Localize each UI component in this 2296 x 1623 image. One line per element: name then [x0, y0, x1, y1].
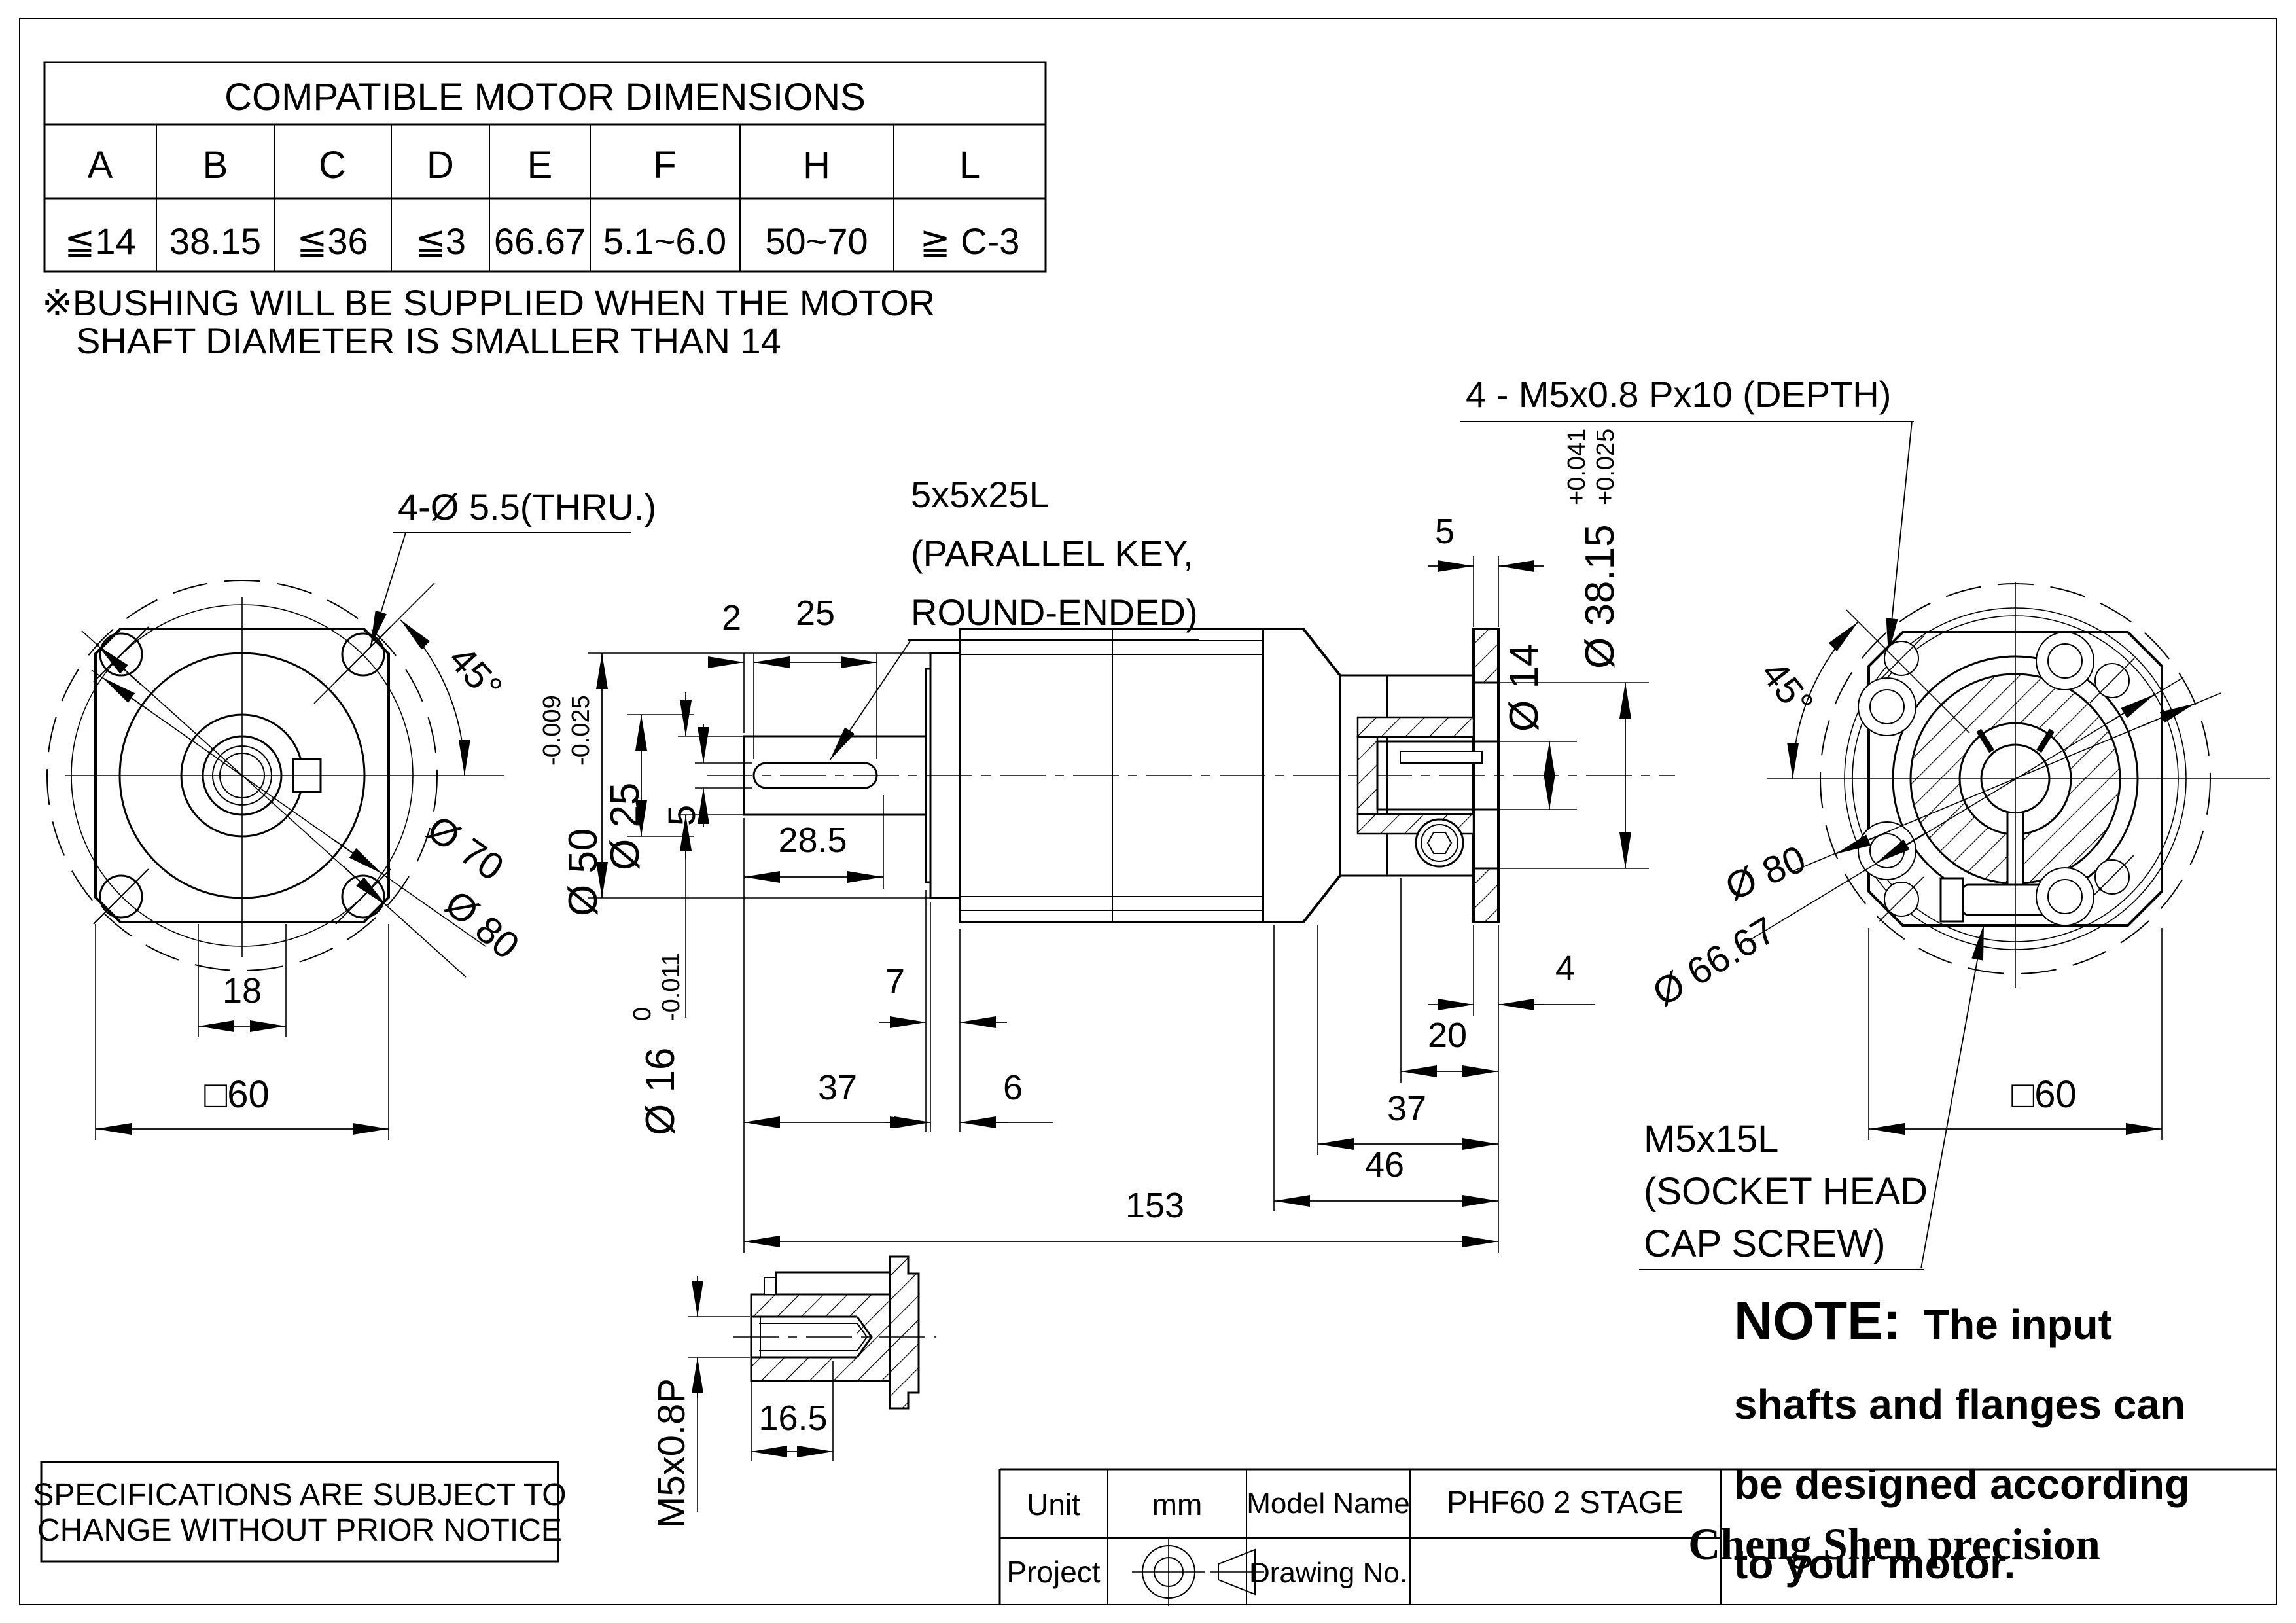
- dim153-label: 153: [1125, 1186, 1184, 1225]
- diagonal-centerline: [314, 583, 434, 704]
- table-header-d: D: [427, 144, 454, 187]
- note-head: NOTE:: [1734, 1291, 1901, 1351]
- dim-7-6-37: 7 37 6: [744, 818, 1053, 1253]
- thru-holes-callout: 4-Ø 5.5(THRU.): [370, 486, 656, 647]
- dim37-left-label: 37: [818, 1068, 857, 1107]
- dim-dia25: Ø 25: [603, 715, 694, 870]
- project-label: Project: [1006, 1555, 1100, 1589]
- table-value-d: ≦3: [415, 221, 466, 262]
- spec-note-box: SPECIFICATIONS ARE SUBJECT TO CHANGE WIT…: [33, 1462, 566, 1561]
- dim6-label: 6: [1003, 1068, 1023, 1107]
- dim-2-25: 2 25: [710, 594, 877, 759]
- tapped-hole-detail-view: M5x0.8P 16.5: [650, 1257, 936, 1528]
- dim-45deg-left: 45°: [400, 620, 510, 776]
- table-value-l: ≧ C-3: [920, 221, 1020, 262]
- spec-note-line2: CHANGE WITHOUT PRIOR NOTICE: [37, 1513, 562, 1548]
- dia16-tol-lo: -0.011: [658, 952, 685, 1021]
- table-header-h: H: [803, 144, 830, 187]
- dim-right-stack: 4 20 37 46 153: [744, 878, 1595, 1253]
- dim28-5-label: 28.5: [778, 821, 847, 860]
- dim-top-right: 5 Ø 14 Ø 38.15 +0.041 +0.025: [1428, 429, 1649, 868]
- table-value-e: 66.67: [494, 221, 586, 262]
- dim46-label: 46: [1365, 1145, 1404, 1185]
- table-header-f: F: [653, 144, 676, 187]
- key-callout: 5x5x25L (PARALLEL KEY, ROUND-ENDED): [830, 474, 1199, 760]
- dia38-tol-hi: +0.041: [1563, 429, 1591, 505]
- table-header-e: E: [527, 144, 553, 187]
- table-value-a: ≦14: [64, 221, 135, 262]
- table-title: COMPATIBLE MOTOR DIMENSIONS: [224, 76, 866, 118]
- thru-holes-label: 4-Ø 5.5(THRU.): [398, 486, 656, 527]
- dim5-key-label: 5: [661, 805, 703, 826]
- note-line2: shafts and flanges can: [1734, 1381, 2185, 1428]
- screw-note-line1: M5x15L: [1644, 1118, 1778, 1160]
- key-note-line1: 5x5x25L: [911, 474, 1050, 515]
- dia80-left-label: Ø 80: [436, 882, 527, 968]
- table-value-b: 38.15: [169, 221, 261, 262]
- dia70-label: Ø 70: [419, 807, 511, 889]
- drawing-no-label: Drawing No.: [1249, 1557, 1407, 1589]
- front-flange-view: 45° Ø 70 Ø 80 18 □60 4-Ø 5.5(THRU.: [47, 486, 656, 1140]
- flange-wall-section: [890, 1257, 919, 1408]
- dia16-label: Ø 16: [638, 1048, 683, 1135]
- bushing-note-line2: SHAFT DIAMETER IS SMALLER THAN 14: [76, 320, 781, 361]
- angle-45-label-right: 45°: [1753, 652, 1822, 724]
- engineering-drawing-canvas: COMPATIBLE MOTOR DIMENSIONS A B C D E F …: [0, 0, 2296, 1623]
- dim7-label: 7: [885, 962, 905, 1001]
- table-header-a: A: [88, 144, 113, 187]
- projection-symbol-icon: [1132, 1538, 1264, 1606]
- table-value-f: 5.1~6.0: [603, 221, 726, 262]
- dia25-label: Ø 25: [603, 783, 648, 870]
- dia50-label: Ø 50: [561, 829, 606, 916]
- tap-callout: 4 - M5x0.8 Px10 (DEPTH): [1460, 374, 1914, 654]
- model-name-label: Model Name: [1246, 1488, 1409, 1520]
- key-note-line3: ROUND-ENDED): [911, 592, 1198, 633]
- dim-dia16: Ø 16 0 -0.011: [629, 692, 744, 1135]
- table-header-l: L: [959, 144, 980, 187]
- compatible-motor-dimensions-table: COMPATIBLE MOTOR DIMENSIONS A B C D E F …: [44, 62, 1046, 272]
- dia38-label: Ø 38.15: [1578, 524, 1623, 669]
- table-header-c: C: [319, 144, 346, 187]
- model-name-value: PHF60 2 STAGE: [1447, 1486, 1684, 1520]
- tap-note-label: 4 - M5x0.8 Px10 (DEPTH): [1466, 374, 1891, 415]
- detail-thread-label: M5x0.8P: [650, 1378, 693, 1528]
- sq60-left-label: □60: [204, 1073, 270, 1116]
- key-note-line2: (PARALLEL KEY,: [911, 533, 1193, 574]
- dim-thread: M5x0.8P: [650, 1276, 750, 1528]
- screw-note-line2: (SOCKET HEAD: [1644, 1170, 1928, 1213]
- dim2-label: 2: [722, 598, 741, 637]
- dim25-label: 25: [796, 594, 835, 633]
- rear-flange-view: 45° Ø 80 Ø 66.67 □60 M5x15L (SOCKET HEAD…: [1639, 582, 2270, 1270]
- screw-note-line3: CAP SCREW): [1644, 1222, 1886, 1265]
- dia14-label: Ø 14: [1502, 644, 1547, 732]
- dia66-label: Ø 66.67: [1646, 908, 1783, 1014]
- dia16-tol-hi: 0: [629, 1007, 656, 1021]
- dim20-label: 20: [1428, 1016, 1467, 1055]
- dim18-label: 18: [222, 971, 262, 1010]
- note-line3: be designed according: [1734, 1461, 2190, 1508]
- dim5-right-label: 5: [1435, 512, 1455, 551]
- note-line1: The input: [1924, 1301, 2112, 1348]
- company-name: Cheng Shen precision: [1688, 1519, 2100, 1569]
- clamp-screw-section: [1416, 819, 1463, 866]
- dim37-right-label: 37: [1387, 1089, 1426, 1128]
- dim4-label: 4: [1555, 949, 1575, 988]
- bushing-note: ※BUSHING WILL BE SUPPLIED WHEN THE MOTOR…: [42, 282, 935, 361]
- table-header-b: B: [203, 144, 228, 187]
- dia50-tol-lo: -0.025: [567, 695, 595, 766]
- dim-45deg-right: 45°: [1753, 622, 1858, 779]
- dim16-5-label: 16.5: [758, 1399, 827, 1438]
- spec-note-line1: SPECIFICATIONS ARE SUBJECT TO: [33, 1478, 566, 1512]
- bushing-note-line1: ※BUSHING WILL BE SUPPLIED WHEN THE MOTOR: [42, 282, 935, 323]
- table-value-c: ≦36: [296, 221, 368, 262]
- dim-28-5: 28.5: [744, 795, 883, 889]
- unit-value: mm: [1152, 1488, 1203, 1522]
- dia38-tol-lo: +0.025: [1592, 429, 1619, 505]
- unit-label: Unit: [1027, 1488, 1080, 1522]
- clearance-slot: [776, 1272, 890, 1294]
- dia80-right-label: Ø 80: [1720, 838, 1812, 909]
- table-value-h: 50~70: [765, 221, 868, 262]
- dia50-tol-hi: -0.009: [539, 695, 566, 766]
- sq60-right-label: □60: [2011, 1073, 2077, 1116]
